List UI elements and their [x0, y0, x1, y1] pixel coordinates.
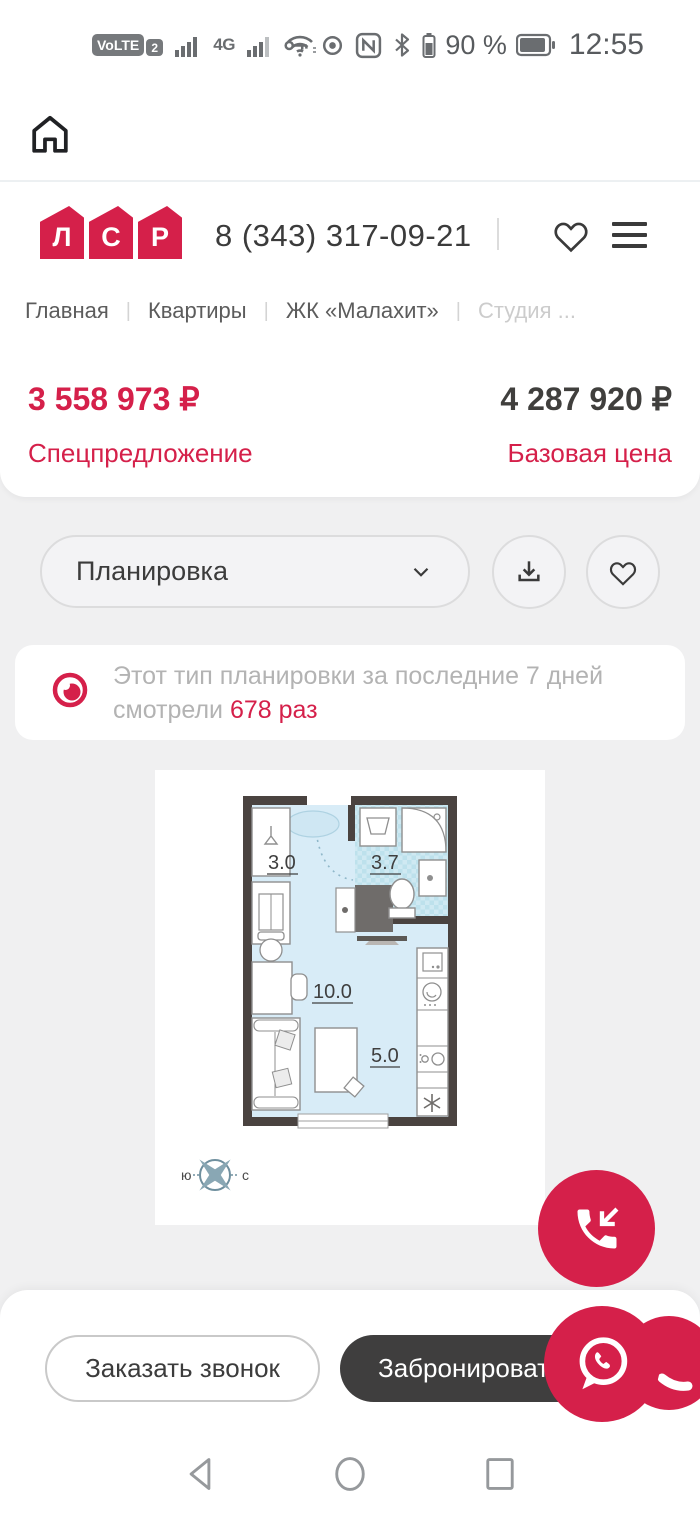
volte-badge: VoLTE 2 — [92, 34, 163, 56]
heart-icon — [607, 557, 639, 587]
battery-saver-icon — [422, 31, 436, 59]
compass-north-label: с — [242, 1167, 249, 1183]
bluetooth-icon — [391, 31, 413, 59]
base-price-label: Базовая цена — [508, 438, 672, 469]
signal-bars-icon — [174, 31, 202, 59]
logo-cube: Р — [138, 206, 182, 259]
breadcrumb: Главная | Квартиры | ЖК «Малахит» | Студ… — [25, 298, 576, 324]
floor-plan-card[interactable]: 3.0 3.7 10.0 5.0 ю с — [155, 770, 545, 1225]
area-label-hall: 3.0 — [268, 852, 296, 874]
download-button[interactable] — [492, 535, 566, 609]
logo-cube: Л — [40, 206, 84, 259]
layout-dropdown[interactable]: Планировка — [40, 535, 470, 608]
breadcrumb-complex[interactable]: ЖК «Малахит» — [286, 298, 439, 324]
download-icon — [513, 556, 545, 588]
status-bar: VoLTE 2 4G — [0, 0, 700, 90]
nav-home-button[interactable] — [320, 1430, 380, 1517]
special-price-label: Спецпредложение — [28, 438, 253, 469]
clock: 12:55 — [569, 28, 644, 62]
favorite-button[interactable] — [586, 535, 660, 609]
nav-recents-button[interactable] — [470, 1430, 530, 1517]
menu-button[interactable] — [612, 222, 647, 248]
breadcrumb-flats[interactable]: Квартиры — [148, 298, 247, 324]
battery-icon — [516, 33, 556, 57]
signal-bars-2-icon — [246, 31, 274, 59]
whatsapp-fab[interactable] — [544, 1306, 660, 1422]
lsr-logo[interactable]: Л С Р — [40, 206, 182, 259]
android-nav-bar — [0, 1430, 700, 1517]
site-header-card: Л С Р 8 (343) 317-09-21 Главная | Кварти… — [0, 182, 700, 497]
area-label-living: 10.0 — [313, 981, 352, 1003]
views-eye-icon — [51, 671, 89, 714]
key-icon — [283, 32, 310, 59]
favorites-button[interactable] — [551, 216, 591, 259]
views-info-card: Этот тип планировки за последние 7 дней … — [15, 645, 685, 740]
layout-dropdown-label: Планировка — [76, 556, 228, 587]
browser-toolbar: lsr.ru/ekb/kvartiry-v 47 ABP — [0, 90, 700, 180]
floor-plan: 3.0 3.7 10.0 5.0 ю с — [155, 770, 545, 1225]
whatsapp-icon — [567, 1329, 637, 1399]
phone-screen: VoLTE 2 4G — [0, 0, 700, 1517]
views-text: Этот тип планировки за последние 7 дней … — [113, 659, 658, 727]
phone-callback-icon — [571, 1203, 623, 1255]
network-type-label: 4G — [213, 35, 235, 55]
compass-icon: ю с — [181, 1156, 249, 1194]
views-count: 678 раз — [230, 696, 318, 724]
callback-fab[interactable] — [538, 1170, 655, 1287]
privacy-eye-icon — [319, 32, 346, 59]
battery-percent: 90 % — [445, 30, 507, 61]
compass-south-label: ю — [181, 1167, 192, 1183]
header-divider — [497, 218, 499, 250]
base-price: 4 287 920 ₽ — [500, 380, 672, 418]
chevron-down-icon — [408, 559, 434, 585]
special-price: 3 558 973 ₽ — [28, 380, 200, 418]
order-call-button[interactable]: Заказать звонок — [45, 1335, 320, 1402]
area-label-bathroom: 3.7 — [371, 852, 399, 874]
breadcrumb-current: Студия ... — [478, 298, 576, 324]
phone-link[interactable]: 8 (343) 317-09-21 — [215, 218, 472, 254]
home-button[interactable] — [27, 112, 73, 163]
logo-cube: С — [89, 206, 133, 259]
breadcrumb-home[interactable]: Главная — [25, 298, 109, 324]
nav-back-button[interactable] — [170, 1430, 230, 1517]
area-label-kitchen: 5.0 — [371, 1045, 399, 1067]
nfc-icon — [355, 32, 382, 59]
